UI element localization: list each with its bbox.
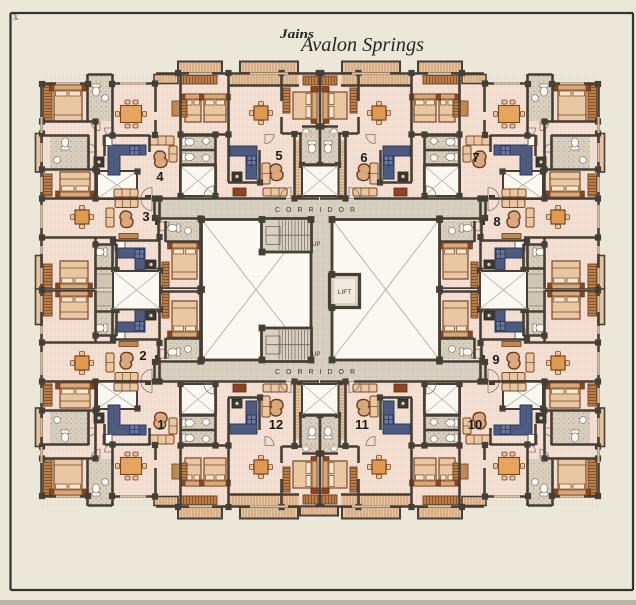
svg-text:9: 9 xyxy=(492,352,499,367)
svg-text:CORRIDOR: CORRIDOR xyxy=(275,207,361,214)
svg-text:1: 1 xyxy=(157,417,164,432)
svg-text:LIFT: LIFT xyxy=(338,289,351,296)
svg-text:UP: UP xyxy=(312,352,320,358)
svg-text:5: 5 xyxy=(275,148,282,163)
svg-text:3.: 3. xyxy=(13,13,19,22)
svg-text:CORRIDOR: CORRIDOR xyxy=(275,369,361,376)
svg-text:6: 6 xyxy=(360,150,367,165)
svg-text:UP: UP xyxy=(312,242,320,248)
svg-text:12: 12 xyxy=(269,417,283,432)
svg-text:11: 11 xyxy=(355,417,369,432)
svg-text:2: 2 xyxy=(139,348,146,363)
svg-text:8: 8 xyxy=(493,214,500,229)
svg-text:Avalon Springs: Avalon Springs xyxy=(299,34,424,56)
svg-text:3: 3 xyxy=(142,209,149,224)
svg-text:10: 10 xyxy=(468,417,482,432)
svg-text:4: 4 xyxy=(156,169,164,184)
svg-text:7: 7 xyxy=(472,150,479,165)
